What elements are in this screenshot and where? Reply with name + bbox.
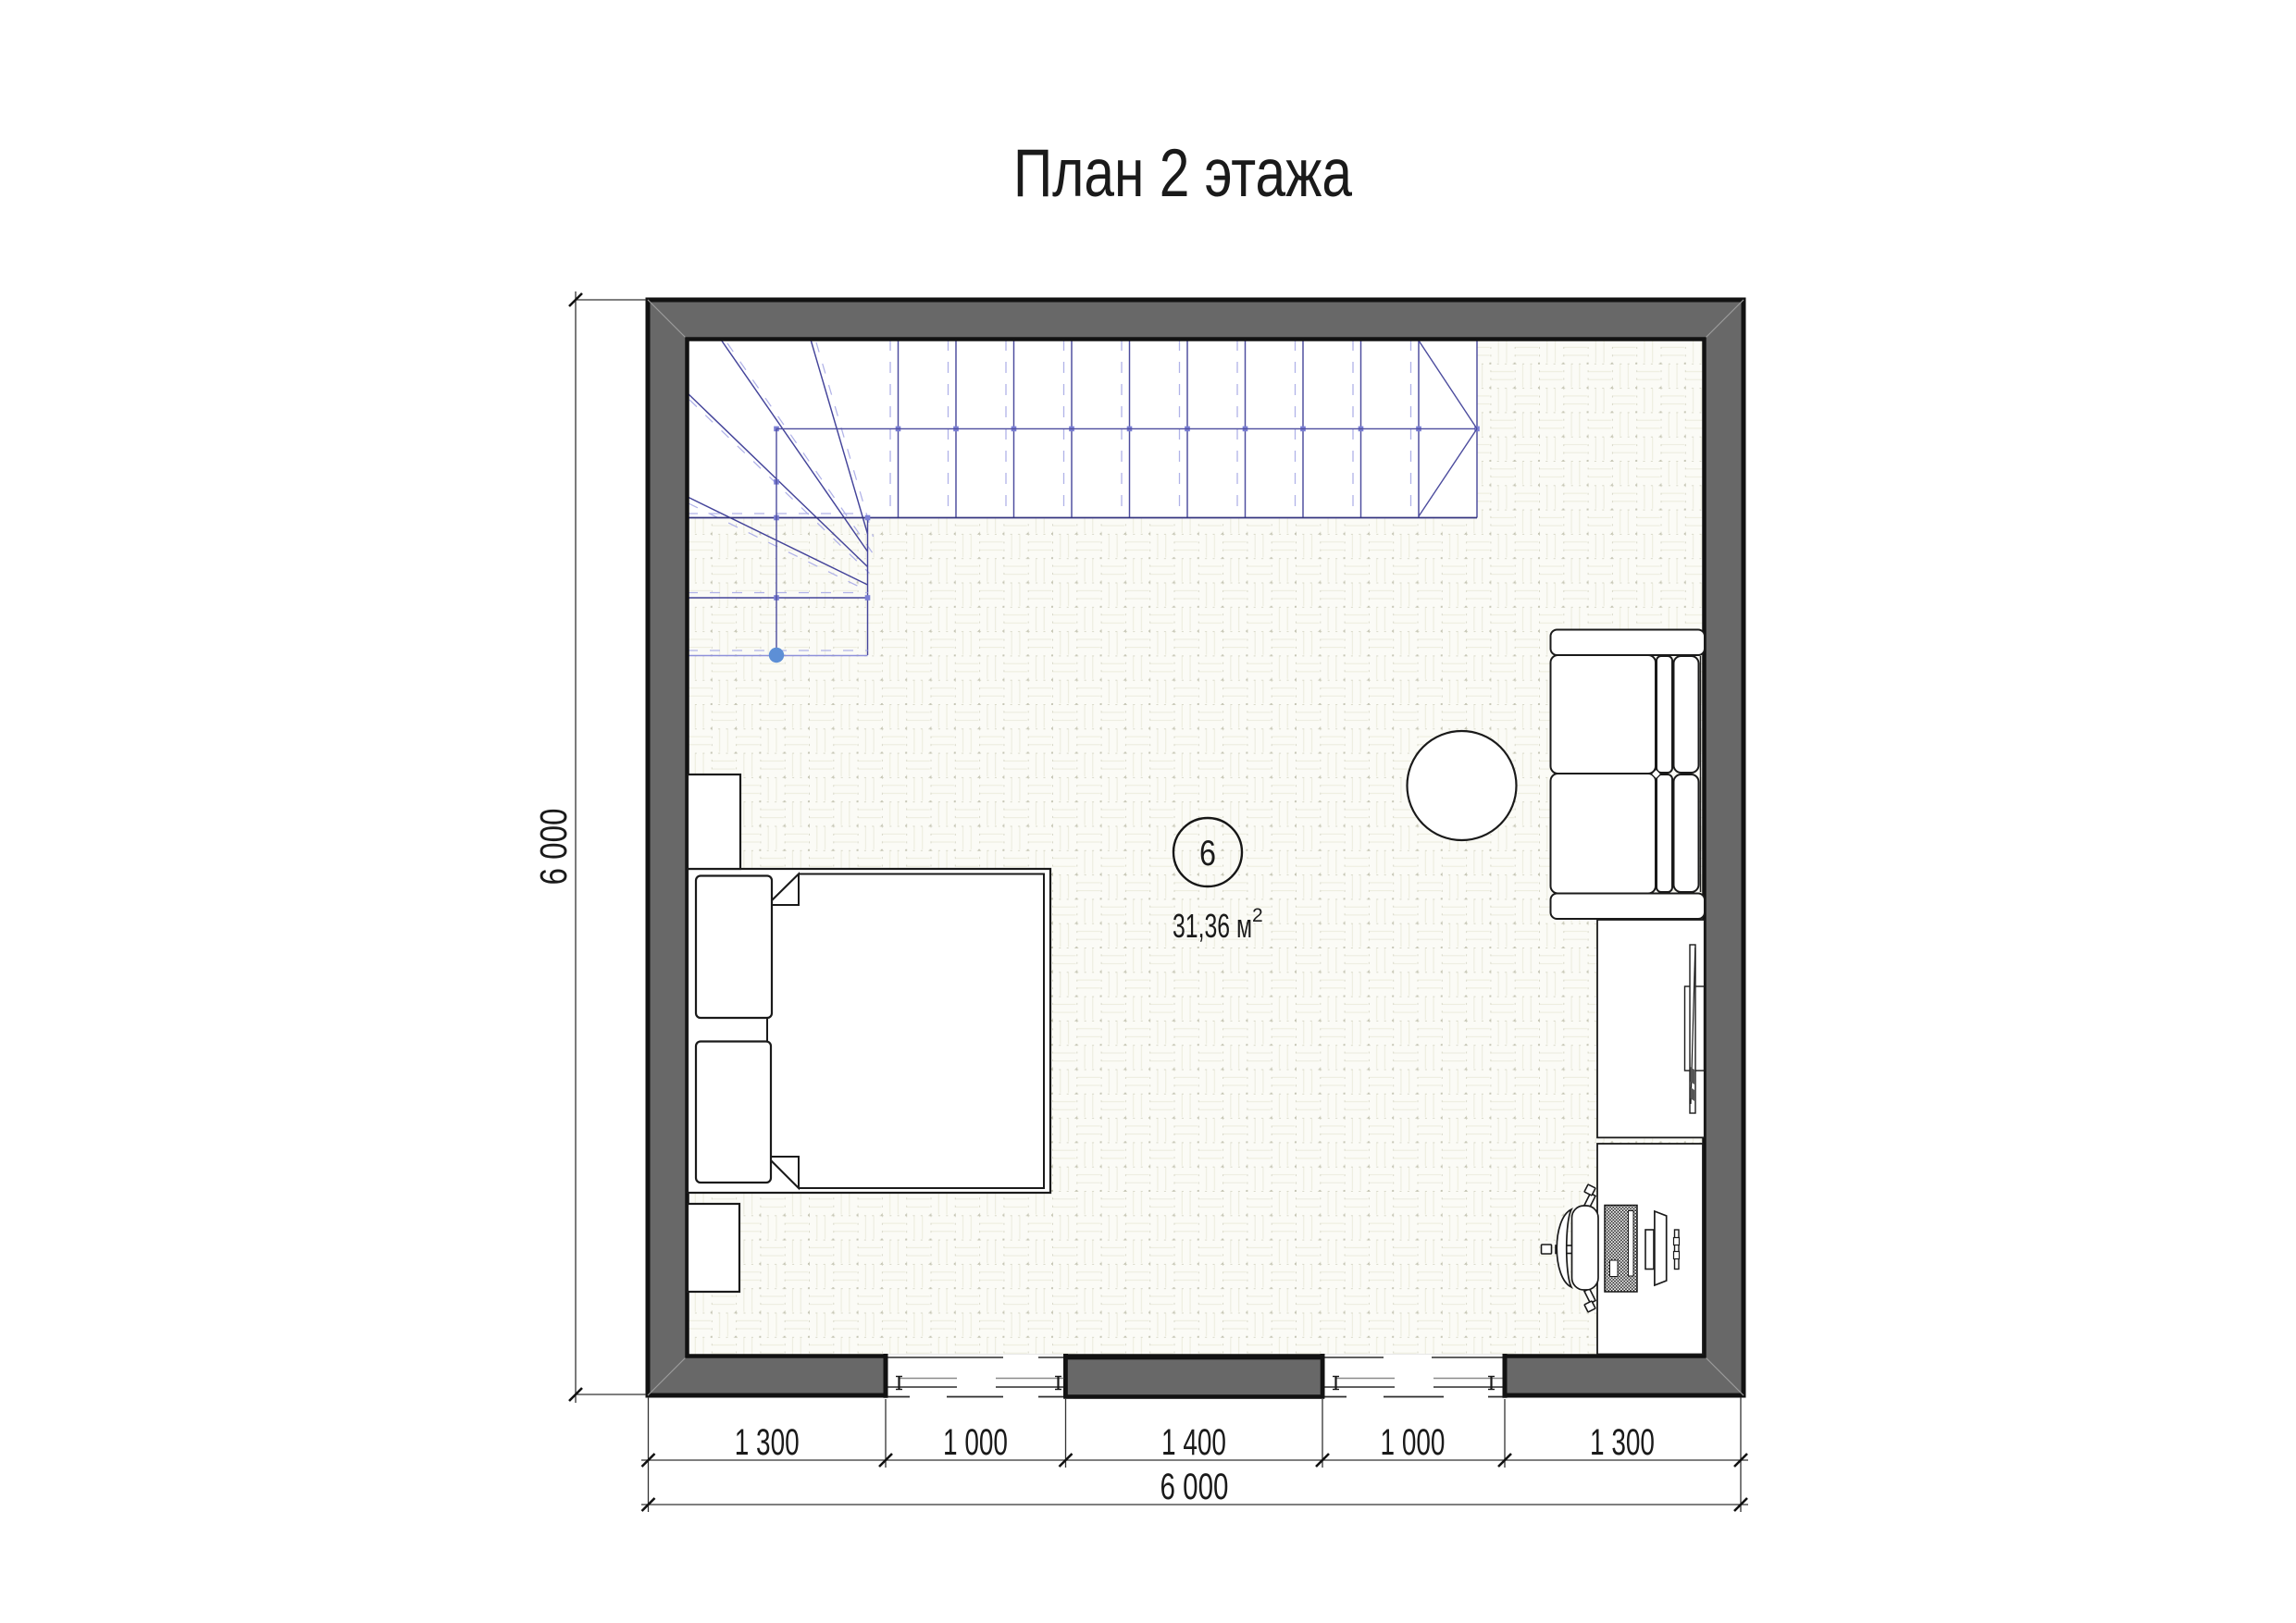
svg-text:6 000: 6 000 <box>532 809 575 886</box>
svg-text:6: 6 <box>1199 834 1216 873</box>
svg-text:1 300: 1 300 <box>735 1422 800 1463</box>
svg-text:1 000: 1 000 <box>1381 1422 1446 1463</box>
svg-text:1 000: 1 000 <box>943 1422 1008 1463</box>
svg-text:1 400: 1 400 <box>1161 1422 1226 1463</box>
svg-text:2: 2 <box>1252 905 1263 926</box>
svg-text:План 2 этажа: План 2 этажа <box>1013 136 1352 211</box>
svg-text:6 000: 6 000 <box>1160 1467 1229 1507</box>
svg-text:1 300: 1 300 <box>1590 1422 1655 1463</box>
svg-text:31,36 м: 31,36 м <box>1173 907 1252 945</box>
